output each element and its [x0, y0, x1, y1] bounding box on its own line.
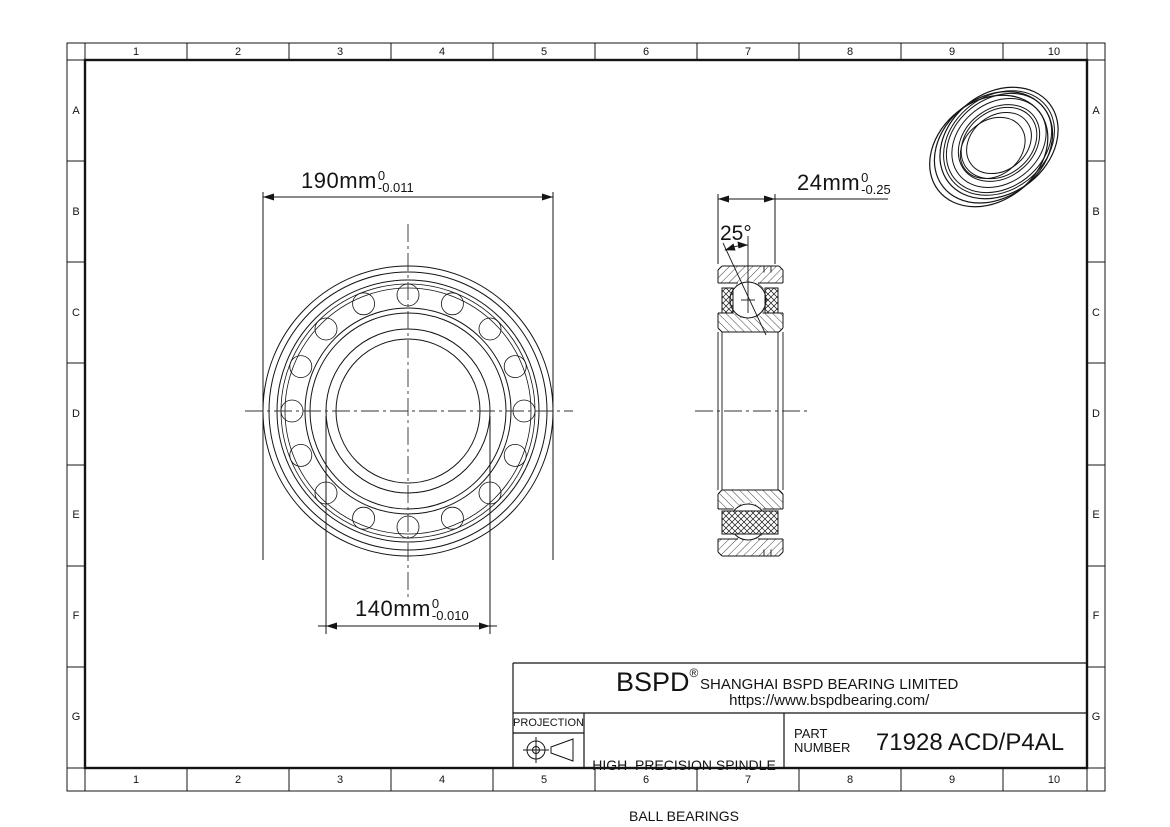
ruler-left: ABCDEFG [67, 60, 85, 768]
tolerance-lower: -0.010 [432, 610, 469, 622]
ruler-label: 10 [1003, 769, 1105, 790]
ruler-label: 2 [187, 43, 289, 60]
part-number-value: 71928 ACD/P4AL [860, 729, 1080, 757]
dim-text-contact-angle: 25° [720, 223, 752, 244]
dim-text-outer-diameter: 190mm 0 -0.011 [301, 170, 414, 192]
projection-label: PROJECTION [513, 717, 584, 729]
product-line2: BALL BEARINGS [584, 808, 784, 825]
ruler-label: 9 [901, 769, 1003, 790]
ruler-label: 8 [799, 43, 901, 60]
dim-value: 190mm [301, 170, 377, 192]
ruler-label: 3 [289, 769, 391, 790]
ruler-label: 8 [799, 769, 901, 790]
ruler-label: F [1087, 566, 1105, 667]
ruler-right: ABCDEFG [1087, 60, 1105, 768]
front-view [245, 224, 573, 599]
ruler-label: 10 [1003, 43, 1105, 60]
logo-text: BSPD [616, 667, 690, 697]
ruler-label: D [1087, 363, 1105, 464]
company-website: https://www.bspdbearing.com/ [700, 693, 958, 709]
ruler-label: 4 [391, 43, 493, 60]
drawing-sheet: 12345678910 12345678910 ABCDEFG ABCDEFG … [0, 0, 1170, 827]
ruler-label: G [67, 667, 85, 768]
projection-symbol-icon [523, 737, 573, 763]
ruler-label: G [1087, 667, 1105, 768]
tolerance-lower: -0.25 [861, 184, 891, 196]
part-number-label: PART NUMBER [794, 727, 850, 755]
isometric-view [908, 64, 1081, 230]
product-description: HIGH PRECISION SPINDLE BALL BEARINGS [584, 723, 784, 827]
dim-value: 140mm [355, 598, 431, 620]
cage-top-right [765, 288, 778, 313]
section-view [695, 236, 807, 556]
ruler-label: 5 [493, 43, 595, 60]
ruler-label: C [1087, 262, 1105, 363]
ruler-label: 9 [901, 43, 1003, 60]
ruler-label: B [67, 161, 85, 262]
drawing-canvas [0, 0, 1170, 827]
ruler-label: B [1087, 161, 1105, 262]
cage-bottom [722, 511, 778, 534]
company-name: SHANGHAI BSPD BEARING LIMITED [700, 677, 958, 693]
company-logo: BSPD® [616, 667, 698, 696]
ruler-label: 4 [391, 769, 493, 790]
ruler-label: 6 [595, 43, 697, 60]
registered-mark: ® [690, 666, 699, 680]
cage-top-left [722, 288, 733, 313]
dim-text-width: 24mm 0 -0.25 [797, 172, 891, 194]
ruler-label: 7 [697, 43, 799, 60]
ruler-label: C [67, 262, 85, 363]
ruler-label: A [1087, 60, 1105, 161]
ruler-label: 5 [493, 769, 595, 790]
tolerance-lower: -0.011 [378, 182, 414, 194]
dim-text-bore-diameter: 140mm 0 -0.010 [355, 598, 469, 620]
ruler-label: E [67, 465, 85, 566]
ruler-label: F [67, 566, 85, 667]
ruler-label: A [67, 60, 85, 161]
ruler-label: 3 [289, 43, 391, 60]
ruler-label: 1 [85, 769, 187, 790]
ruler-label: 2 [187, 769, 289, 790]
ruler-top: 12345678910 [85, 43, 1105, 60]
ruler-label: E [1087, 465, 1105, 566]
product-line1: HIGH PRECISION SPINDLE [584, 757, 784, 774]
dim-value: 24mm [797, 172, 860, 194]
ruler-label: D [67, 363, 85, 464]
company-info: SHANGHAI BSPD BEARING LIMITED https://ww… [700, 677, 958, 709]
ruler-label: 1 [85, 43, 187, 60]
